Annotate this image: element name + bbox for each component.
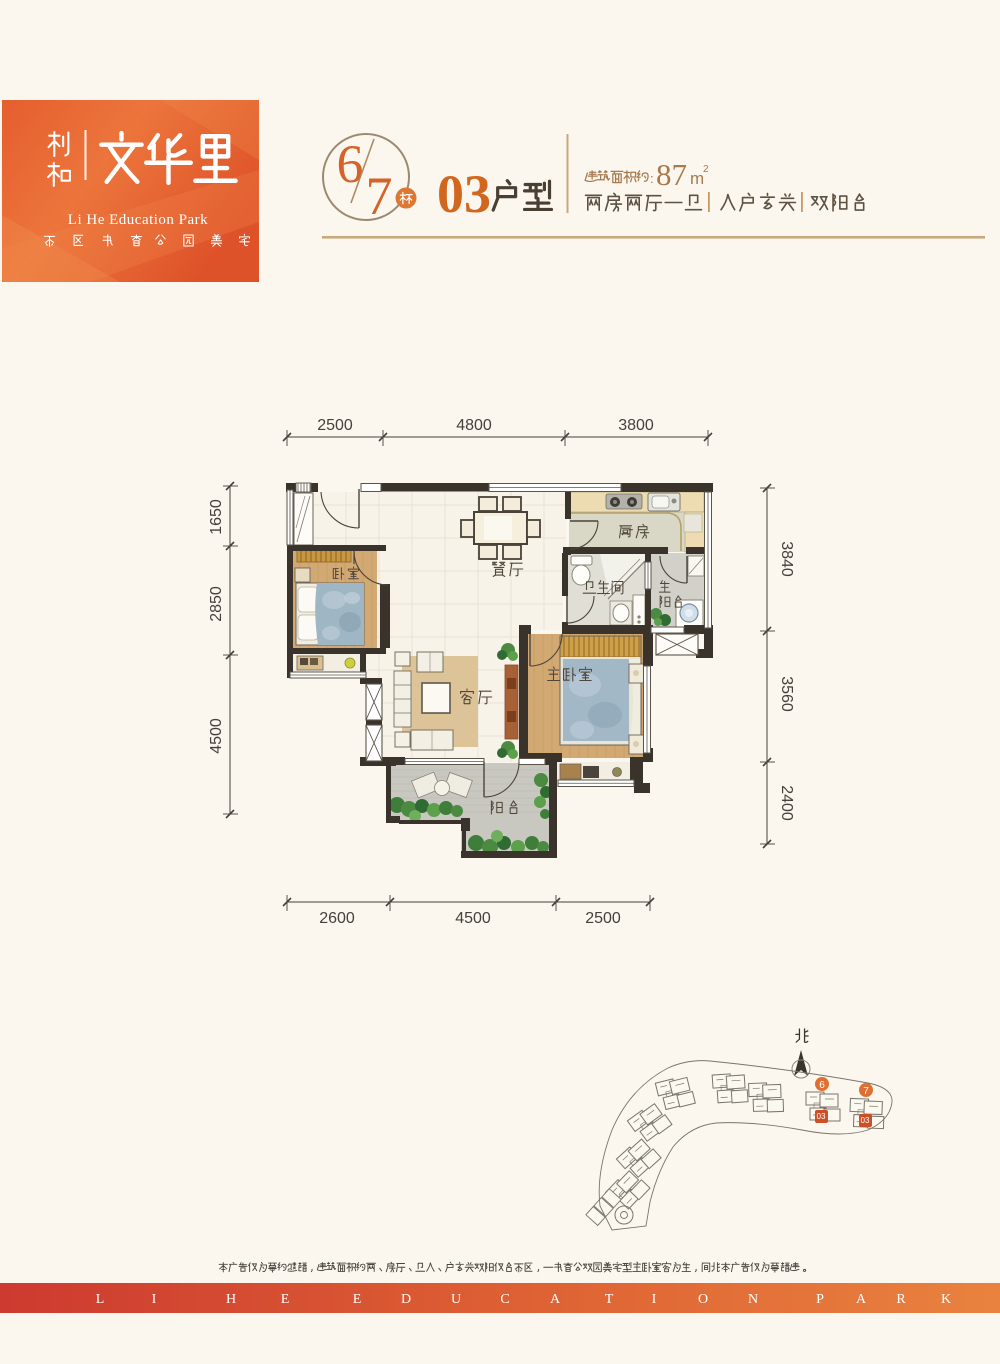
svg-text:03: 03 (437, 164, 491, 224)
svg-text:E: E (353, 1292, 362, 1307)
svg-text:2500: 2500 (317, 417, 353, 434)
svg-text:03: 03 (861, 1116, 870, 1125)
svg-text:2600: 2600 (319, 910, 355, 927)
svg-text:O: O (698, 1292, 708, 1307)
svg-text:A: A (856, 1292, 867, 1307)
svg-text::: : (650, 171, 654, 186)
svg-text:3840: 3840 (778, 541, 795, 577)
svg-text:D: D (401, 1292, 411, 1307)
svg-text:2: 2 (703, 164, 709, 175)
svg-text:U: U (451, 1292, 461, 1307)
svg-text:I: I (652, 1292, 657, 1307)
svg-text:6: 6 (337, 134, 364, 194)
svg-text:P: P (816, 1292, 824, 1307)
svg-text:3800: 3800 (618, 417, 654, 434)
svg-text:T: T (605, 1292, 614, 1307)
svg-text:87: 87 (656, 157, 687, 192)
svg-text:03: 03 (817, 1112, 826, 1121)
svg-text:2400: 2400 (778, 785, 795, 821)
svg-text:4500: 4500 (208, 718, 225, 754)
svg-text:H: H (226, 1292, 236, 1307)
svg-text:6: 6 (819, 1080, 825, 1091)
svg-text:R: R (896, 1292, 906, 1307)
svg-text:E: E (281, 1292, 290, 1307)
svg-text:4800: 4800 (456, 417, 492, 434)
svg-text:L: L (96, 1292, 105, 1307)
svg-text:I: I (152, 1292, 157, 1307)
svg-text:3560: 3560 (778, 676, 795, 712)
svg-text:7: 7 (366, 166, 393, 226)
svg-text:N: N (748, 1292, 758, 1307)
svg-text:C: C (500, 1292, 509, 1307)
svg-text:K: K (941, 1292, 951, 1307)
svg-text:2850: 2850 (208, 586, 225, 622)
svg-text:4500: 4500 (455, 910, 491, 927)
svg-text:1650: 1650 (208, 499, 225, 535)
svg-text:A: A (550, 1292, 561, 1307)
svg-text:Li He Education Park: Li He Education Park (68, 212, 208, 228)
svg-text:7: 7 (863, 1086, 869, 1097)
svg-text:2500: 2500 (585, 910, 621, 927)
